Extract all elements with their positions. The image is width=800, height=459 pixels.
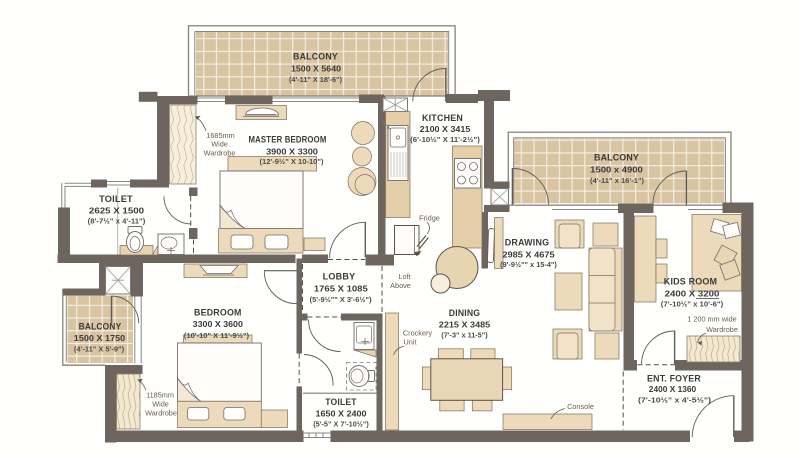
svg-text:BEDROOM: BEDROOM [194,308,242,318]
svg-text:(7'-10½" x 4'-5½"): (7'-10½" x 4'-5½") [638,396,712,405]
svg-text:(7'-3" x 11-5"): (7'-3" x 11-5") [441,331,488,340]
svg-text:Wardrobe: Wardrobe [706,325,738,334]
svg-text:(6'-10½" X 11'-2½"): (6'-10½" X 11'-2½") [410,135,480,144]
svg-text:KIDS ROOM: KIDS ROOM [664,277,717,287]
svg-text:3900 X 3300: 3900 X 3300 [266,147,318,157]
svg-text:TOILET: TOILET [325,397,357,407]
svg-text:1500 x 4900: 1500 x 4900 [590,165,643,175]
svg-text:(12'-9½" X 10-10"): (12'-9½" X 10-10") [260,157,325,166]
svg-text:1765 X 1085: 1765 X 1085 [314,284,368,294]
svg-text:1650 X 2400: 1650 X 2400 [316,409,367,419]
svg-text:Console: Console [567,402,594,411]
svg-text:Fridge: Fridge [419,214,440,223]
svg-text:2400 X 3200: 2400 X 3200 [665,289,720,299]
svg-text:KITCHEN: KITCHEN [422,113,463,123]
svg-text:(9'-9½"" x 15-4"): (9'-9½"" x 15-4") [500,260,557,269]
svg-text:2215 X 3485: 2215 X 3485 [439,320,491,330]
svg-text:(5'-5" X 7'-10½"): (5'-5" X 7'-10½") [313,420,369,429]
svg-text:Wardrobe: Wardrobe [145,409,177,418]
svg-text:1500 X 1750: 1500 X 1750 [74,333,126,343]
svg-text:Unit: Unit [404,338,417,347]
svg-text:2400 X 1360: 2400 X 1360 [649,384,697,394]
svg-text:DINING: DINING [449,308,480,318]
svg-text:1 200 mm wide: 1 200 mm wide [687,315,736,324]
svg-text:3300 X 3600: 3300 X 3600 [193,319,243,329]
svg-text:(7'-10½" x 10'-6"): (7'-10½" x 10'-6") [661,300,724,309]
svg-text:2985 X 4675: 2985 X 4675 [502,250,555,260]
svg-text:2100 X 3415: 2100 X 3415 [420,124,471,134]
svg-text:Above: Above [390,281,411,290]
svg-text:MASTER BEDROOM: MASTER BEDROOM [249,135,327,145]
svg-text:Wide: Wide [211,140,228,149]
svg-text:(10'-10" X 11'-9½"): (10'-10" X 11'-9½") [184,331,250,340]
svg-text:1500 X 5640: 1500 X 5640 [291,64,341,74]
svg-text:TOILET: TOILET [99,194,133,204]
svg-text:2625 X 1500: 2625 X 1500 [89,206,144,216]
svg-text:ENT. FOYER: ENT. FOYER [647,374,701,384]
svg-text:Wardrobe: Wardrobe [204,149,236,158]
svg-text:(8'-7½" x 4'-11"): (8'-7½" x 4'-11") [88,217,146,226]
svg-text:(4'-11" X 18'-6"): (4'-11" X 18'-6") [289,75,343,84]
svg-text:Wide: Wide [152,400,169,409]
svg-text:BALCONY: BALCONY [293,52,338,62]
svg-text:(5'-9½"" X 3'-6½"): (5'-9½"" X 3'-6½") [310,295,373,304]
svg-text:(4'-11" x 16'-1"): (4'-11" x 16'-1") [590,176,645,185]
svg-text:Crockery: Crockery [403,329,433,338]
svg-text:DRAWING: DRAWING [505,238,550,248]
svg-text:LOBBY: LOBBY [323,272,356,282]
svg-text:BALCONY: BALCONY [79,322,122,332]
svg-text:BALCONY: BALCONY [594,153,639,163]
svg-text:1185mm: 1185mm [146,391,174,400]
svg-text:(4'-11" X 5'-9"): (4'-11" X 5'-9") [74,345,125,354]
svg-text:Loft: Loft [398,272,410,281]
